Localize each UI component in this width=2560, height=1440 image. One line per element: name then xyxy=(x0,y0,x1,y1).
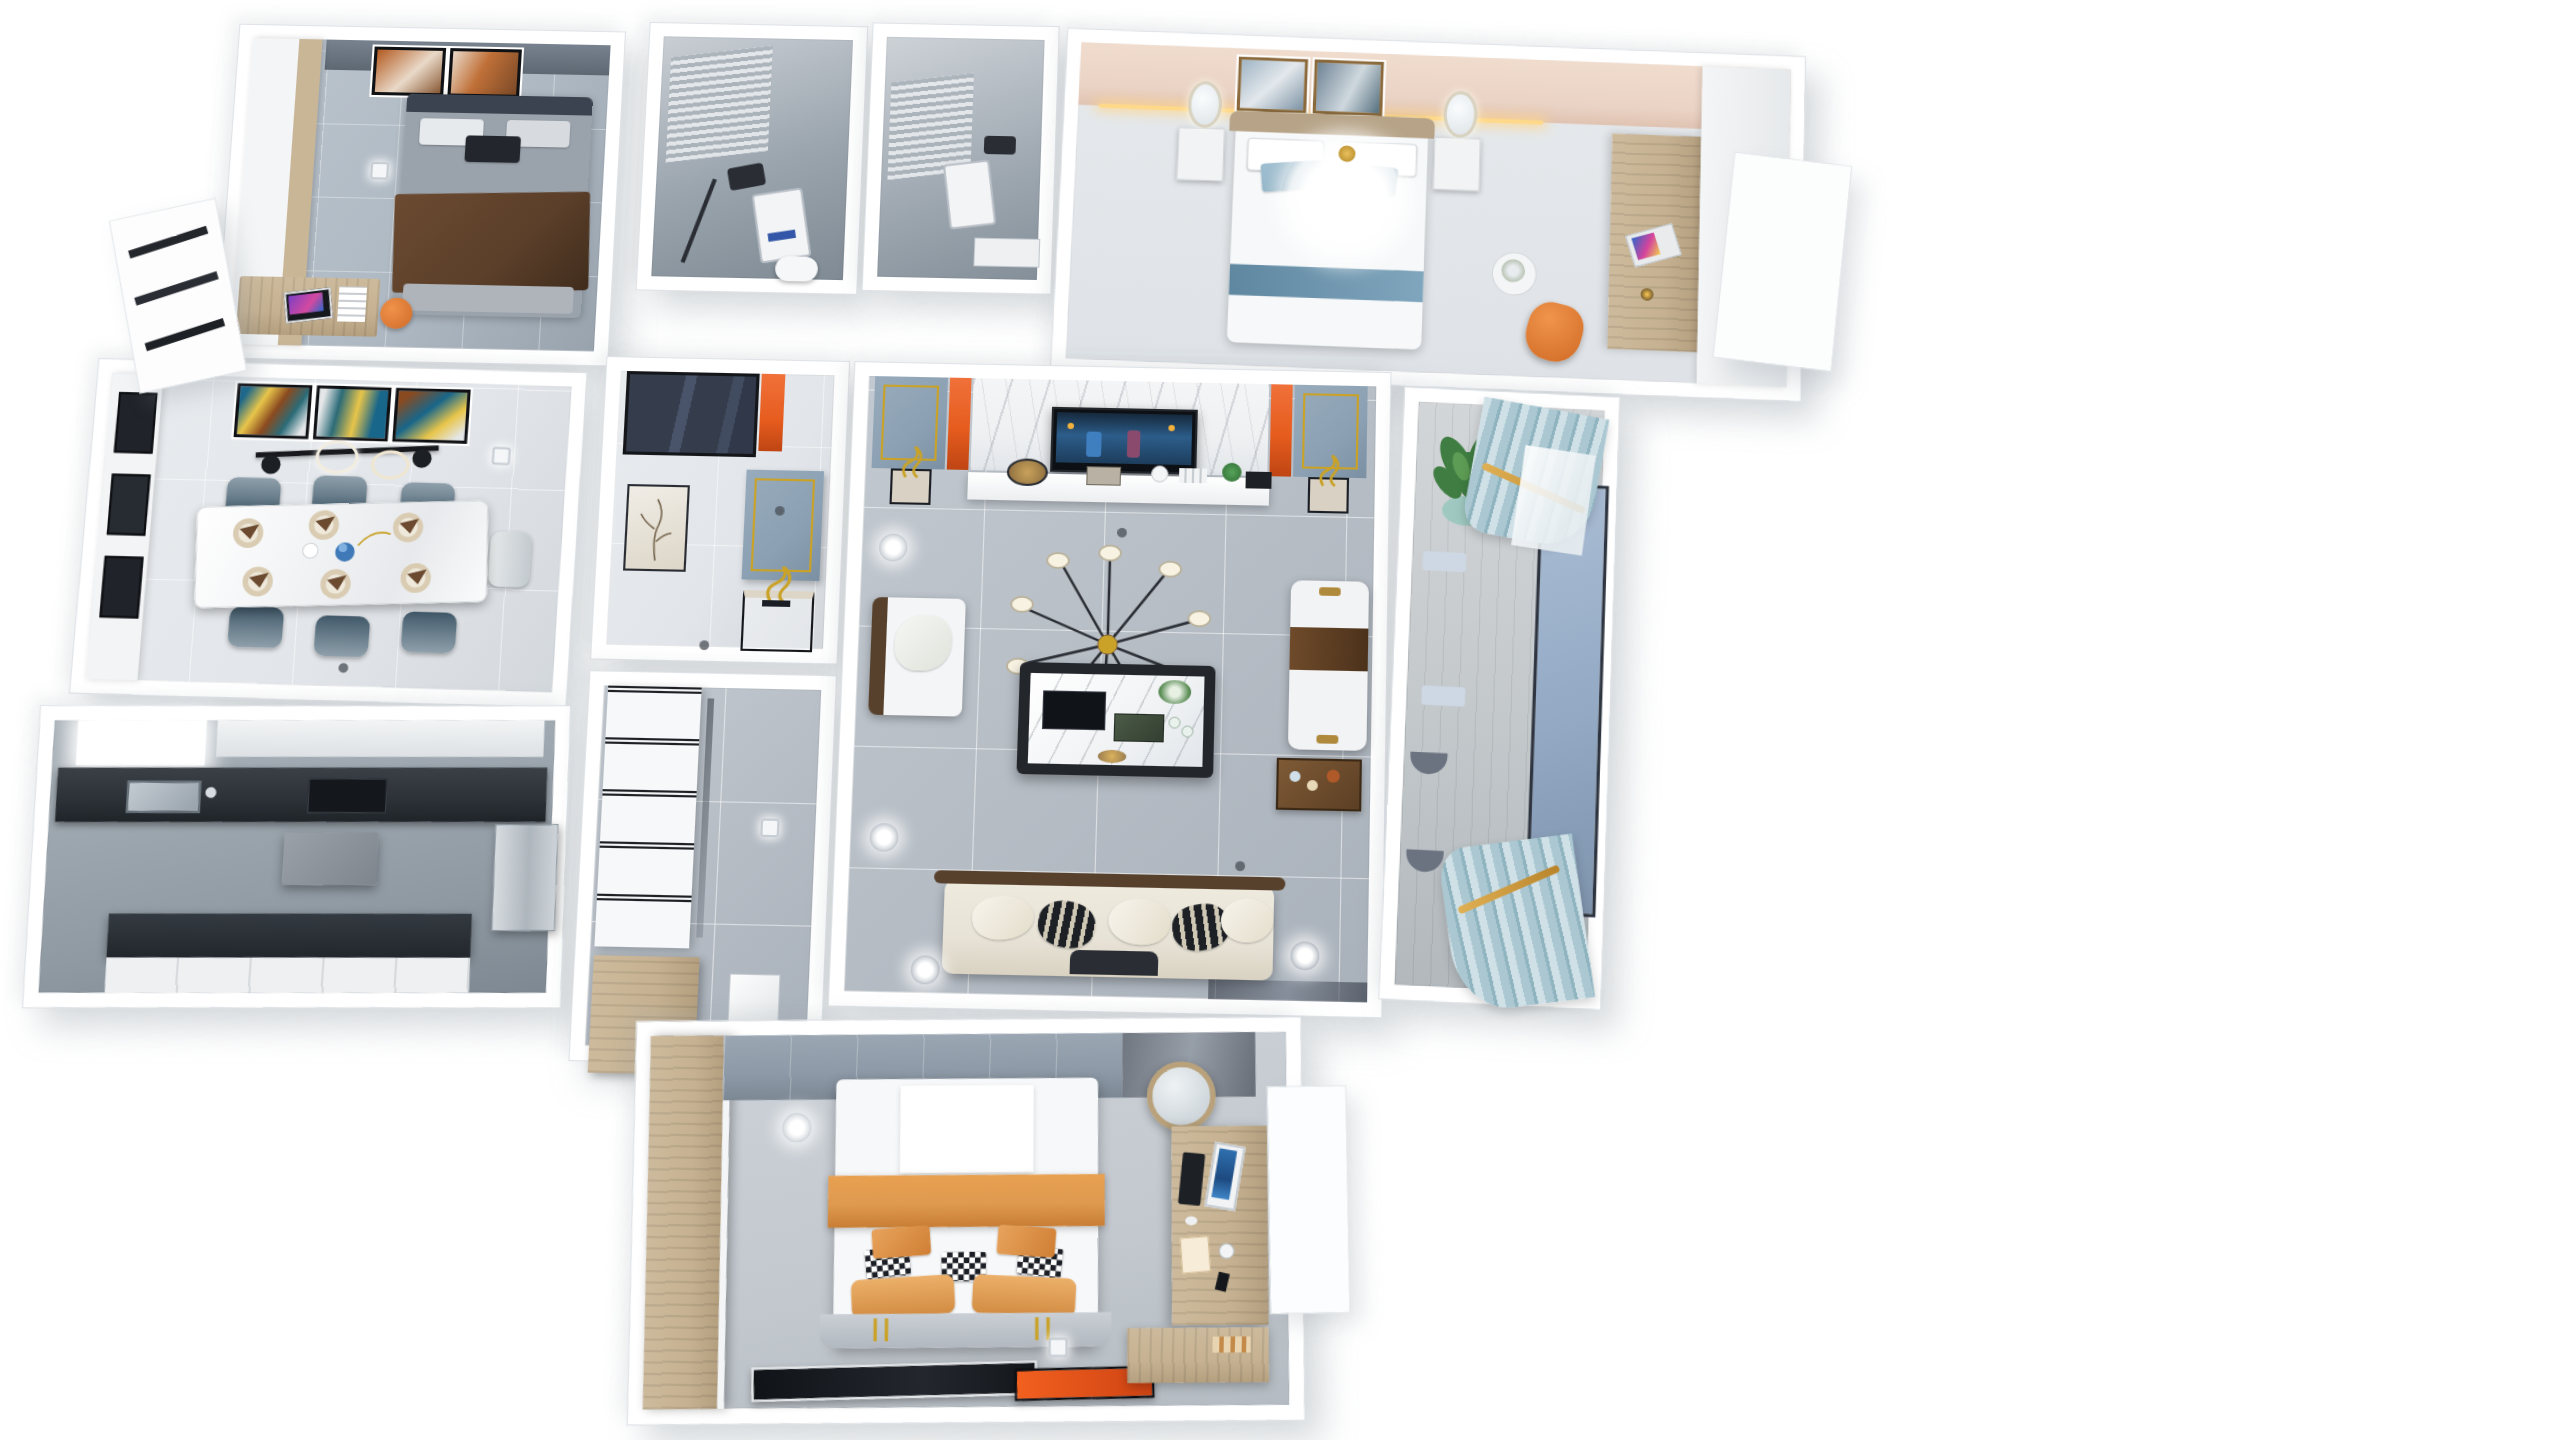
orange-accent-strip xyxy=(758,374,785,452)
room-kitchen xyxy=(23,706,570,1007)
wardrobe-column xyxy=(643,1036,731,1410)
glass-door xyxy=(107,474,151,536)
orange-lumbar-pillow xyxy=(851,1274,956,1319)
monitor-screen xyxy=(1211,1148,1237,1200)
oval-mirror-lamp xyxy=(1187,81,1223,129)
hall-cabinets-white xyxy=(594,686,701,949)
floor-spot xyxy=(879,534,908,562)
branch-drawing xyxy=(625,486,687,570)
range-hood xyxy=(282,833,379,885)
monitor-screen xyxy=(288,292,323,314)
triptych-art xyxy=(233,383,312,439)
headboard xyxy=(406,94,593,116)
tv-screen xyxy=(1056,412,1193,465)
dining-chair xyxy=(313,615,370,657)
tray-cups xyxy=(1289,771,1300,782)
black-tray xyxy=(1042,690,1106,730)
wall-ac-box xyxy=(1422,551,1466,572)
abstract-art-frame xyxy=(447,48,522,98)
dark-seat-center xyxy=(1070,950,1159,976)
tray-decanter xyxy=(1327,770,1340,783)
sheer-curtain xyxy=(1511,445,1596,556)
art-frame xyxy=(1237,56,1309,113)
ceiling-light xyxy=(492,447,511,465)
gold-handle xyxy=(1319,587,1341,596)
flower-side-table xyxy=(1491,251,1537,296)
dining-table xyxy=(194,500,488,608)
decor-ring xyxy=(1007,458,1049,486)
shower-fixture-black xyxy=(984,136,1016,155)
sofa xyxy=(942,879,1275,980)
room-living xyxy=(829,362,1391,1017)
floor-dot xyxy=(338,663,348,673)
room-guest-bedroom xyxy=(1051,29,1805,401)
island-counter xyxy=(106,914,471,958)
side-table-tray xyxy=(1276,758,1362,812)
orange-bed-runner xyxy=(828,1174,1105,1228)
round-mirror xyxy=(1147,1061,1216,1131)
floor-dot xyxy=(1117,528,1127,538)
cup xyxy=(1219,1243,1235,1259)
room-secondary-bedroom xyxy=(216,25,625,366)
decor-plant xyxy=(1222,463,1242,482)
notebook xyxy=(1180,1236,1212,1274)
wall-shelf-black xyxy=(145,318,226,351)
gold-sculpture-pedestal xyxy=(1308,477,1350,514)
apartment-dollhouse xyxy=(0,4,2223,1413)
floor-dot xyxy=(1235,861,1245,871)
media-console xyxy=(967,472,1269,506)
tea-tray-green xyxy=(1114,713,1165,742)
tv-scene-lamp xyxy=(1168,425,1175,431)
armchair-pillow xyxy=(894,615,952,672)
books xyxy=(337,286,367,322)
chaise-bench xyxy=(1288,580,1369,751)
glass-door xyxy=(99,556,143,619)
shower-control-panel xyxy=(943,159,997,229)
ceiling-light xyxy=(1049,1338,1068,1358)
desk xyxy=(1607,133,1701,352)
panel-display xyxy=(768,230,797,242)
brown-blanket xyxy=(392,192,590,293)
gold-stripe xyxy=(873,1318,877,1341)
room-balcony xyxy=(1379,387,1619,1009)
laptop xyxy=(1625,223,1682,267)
armchair-white xyxy=(868,597,966,717)
brown-throw xyxy=(1289,627,1368,671)
nightstand xyxy=(1433,137,1481,192)
gold-handle xyxy=(1316,735,1338,744)
floor-spot xyxy=(910,955,940,984)
decor-books xyxy=(1179,468,1207,483)
desk-chair-orange xyxy=(379,298,413,330)
cream-pillow xyxy=(1220,897,1275,943)
dining-chair xyxy=(400,611,457,653)
gray-throw xyxy=(402,284,574,314)
counter-top-run xyxy=(55,768,547,822)
vanity xyxy=(973,238,1040,268)
bed xyxy=(833,1078,1098,1349)
cooktop xyxy=(307,778,387,813)
shower-control-panel xyxy=(751,187,811,263)
sideboard-black-glass xyxy=(85,373,163,681)
pendant-disc xyxy=(412,449,433,468)
gold-stripe xyxy=(885,1318,889,1341)
pendant-disc xyxy=(261,455,282,474)
decor-speaker xyxy=(1086,466,1121,486)
base-cabinets xyxy=(105,958,471,993)
window-bay-slab xyxy=(1268,1086,1350,1313)
pendant-gold-ring xyxy=(314,440,359,475)
decor-vase xyxy=(1151,465,1169,482)
orange-strip xyxy=(1269,384,1292,476)
decor-album xyxy=(1246,472,1272,489)
tv-scene-figure xyxy=(1127,430,1141,457)
toilet xyxy=(775,256,819,282)
floor-spot xyxy=(1290,941,1319,970)
stool xyxy=(1406,849,1444,873)
orange-strip xyxy=(947,378,972,470)
flowers xyxy=(1501,259,1525,283)
gold-sculpture xyxy=(1310,452,1343,488)
bed xyxy=(393,94,593,319)
gold-trim xyxy=(751,478,816,572)
gold-tieback xyxy=(1457,864,1561,914)
ceiling-light xyxy=(760,818,779,837)
dark-pillow xyxy=(464,135,521,163)
entry-door-navy-glass xyxy=(623,371,760,457)
curtain-blue xyxy=(1437,834,1595,1015)
room-master-bedroom xyxy=(628,1017,1305,1424)
triptych-art xyxy=(313,385,392,441)
white-blanket-fold xyxy=(900,1085,1034,1173)
ceiling-light xyxy=(370,162,389,180)
coffee-table xyxy=(1017,662,1216,778)
fridge xyxy=(491,824,558,931)
window-blinds xyxy=(666,46,773,163)
glass-partition xyxy=(1208,979,1367,1002)
floorplan-scene xyxy=(120,14,2380,1414)
triptych-art xyxy=(392,388,471,444)
shower-rail xyxy=(681,179,717,263)
room-hallway xyxy=(570,671,836,1065)
orange-lumbar-pillow xyxy=(971,1274,1076,1317)
gold-stripe xyxy=(1035,1317,1038,1340)
floor-dot xyxy=(699,640,709,650)
abstract-art-frame xyxy=(371,47,446,97)
vanity-shelf xyxy=(1127,1327,1269,1383)
monitor xyxy=(284,287,333,323)
glass-door xyxy=(114,392,158,454)
upper-cabinets xyxy=(216,720,545,757)
gold-sculpture xyxy=(745,566,810,608)
phone xyxy=(1215,1272,1230,1292)
laptop-screen xyxy=(1631,232,1660,260)
sofa-back-trim xyxy=(934,870,1286,891)
keyboard xyxy=(1178,1152,1205,1206)
mouse xyxy=(1185,1216,1197,1225)
art-frame xyxy=(1313,59,1385,116)
branch-artwork xyxy=(623,484,690,572)
chandelier-gold-center xyxy=(1338,145,1356,162)
tv-wall xyxy=(865,376,1376,478)
orange-pillow xyxy=(871,1225,931,1259)
accent-chair-orange xyxy=(1520,297,1589,368)
cream-pillow xyxy=(1106,895,1173,948)
room-bathroom-two xyxy=(863,23,1059,293)
monitor xyxy=(1204,1142,1246,1212)
end-chair xyxy=(488,531,533,587)
orange-pillow xyxy=(996,1225,1056,1258)
oval-mirror-lamp xyxy=(1443,91,1478,139)
kitchen-window xyxy=(76,720,207,765)
console-table xyxy=(740,590,814,652)
desk xyxy=(1171,1126,1268,1326)
tray-cups xyxy=(1307,780,1318,791)
perfume-bottles xyxy=(1213,1336,1251,1352)
gold-medallion xyxy=(1098,750,1127,764)
outer-wall-slab xyxy=(1714,153,1852,371)
room-dining xyxy=(70,359,587,707)
cream-pillow xyxy=(970,892,1036,943)
gold-sculpture xyxy=(893,443,927,479)
shower-fixture-black xyxy=(727,162,766,191)
floor-spot xyxy=(869,823,899,852)
desk xyxy=(236,276,381,337)
tv-scene-figure xyxy=(1086,432,1102,457)
blue-throw xyxy=(1229,264,1424,302)
tv-scene-lamp xyxy=(1067,423,1074,429)
floor-spot xyxy=(782,1113,811,1142)
rug-black xyxy=(751,1360,1037,1402)
room-foyer xyxy=(591,357,849,663)
panel-door-gold-trim xyxy=(742,470,825,581)
wall-shelf-black xyxy=(134,271,218,305)
faucet xyxy=(205,787,216,798)
stool xyxy=(1410,752,1448,775)
place-settings xyxy=(194,500,488,608)
wall-shelf-black xyxy=(128,226,208,259)
striped-pillow xyxy=(1034,896,1099,952)
wall-tv xyxy=(1050,407,1198,475)
gold-sculpture-pedestal xyxy=(889,468,931,505)
room-bathroom-one xyxy=(637,23,868,294)
pendant-gold-ring xyxy=(370,450,411,480)
dining-chair xyxy=(227,606,284,648)
nightstand xyxy=(1176,127,1225,182)
gold-stripe xyxy=(1046,1317,1049,1340)
candle xyxy=(1641,288,1654,301)
sink xyxy=(126,781,202,814)
wall-ac-box xyxy=(1421,685,1465,706)
